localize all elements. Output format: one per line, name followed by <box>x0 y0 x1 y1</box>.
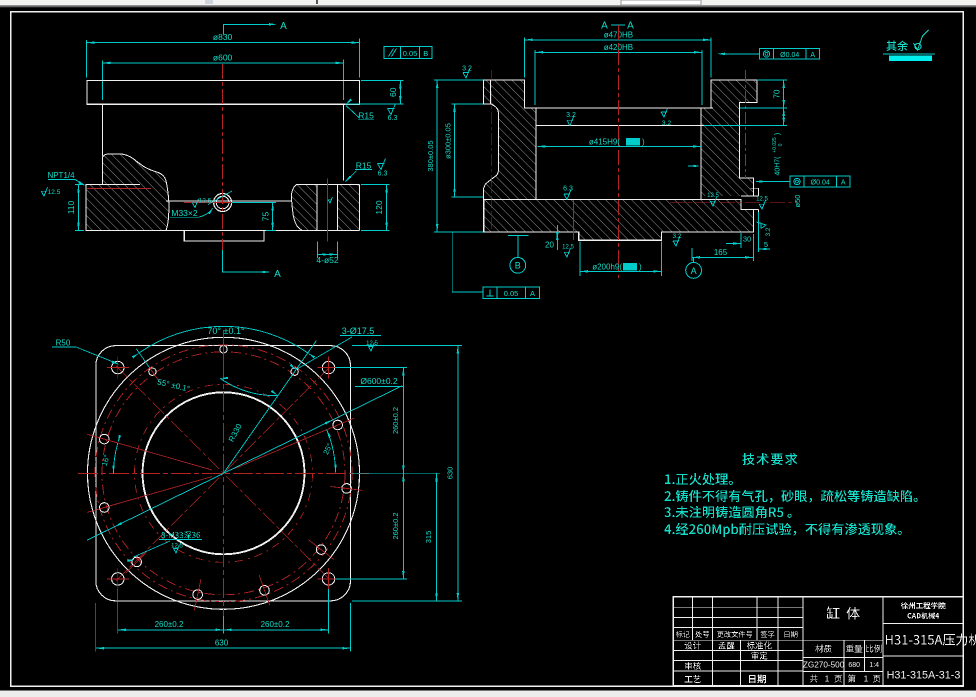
svg-text:12.5: 12.5 <box>756 197 768 203</box>
svg-text:ø50: ø50 <box>793 195 802 208</box>
svg-text:12.5: 12.5 <box>562 245 574 251</box>
svg-text:B: B <box>423 49 428 58</box>
svg-text:Ø0.04: Ø0.04 <box>780 52 799 59</box>
svg-text:1: 1 <box>825 674 830 684</box>
svg-text:M33×2: M33×2 <box>171 208 197 218</box>
svg-text:260±0.2: 260±0.2 <box>155 620 184 629</box>
svg-text:R50: R50 <box>56 339 71 348</box>
svg-text:6.3: 6.3 <box>563 186 573 193</box>
svg-text:70: 70 <box>773 89 782 98</box>
svg-text:B: B <box>515 261 521 271</box>
svg-text:30: 30 <box>743 235 751 244</box>
svg-text:380±0.05: 380±0.05 <box>426 140 435 171</box>
svg-text:0.05: 0.05 <box>504 289 519 298</box>
svg-text:H31-315A-31-3: H31-315A-31-3 <box>887 669 961 681</box>
svg-text:ø415H9(: ø415H9( <box>589 138 620 147</box>
svg-text:630: 630 <box>215 639 229 648</box>
svg-text:60: 60 <box>388 87 398 97</box>
svg-text:A: A <box>810 52 815 59</box>
svg-text:110: 110 <box>66 200 76 214</box>
svg-text:A: A <box>280 21 287 32</box>
svg-text:): ) <box>775 133 782 135</box>
svg-text:R15: R15 <box>358 111 374 121</box>
svg-text:70° ±0.1°: 70° ±0.1° <box>207 326 245 336</box>
svg-text:ø200h9(: ø200h9( <box>592 263 622 272</box>
svg-text:ø600: ø600 <box>213 52 233 62</box>
svg-text:5: 5 <box>764 240 768 249</box>
svg-text:3-Ø17.5: 3-Ø17.5 <box>342 326 375 336</box>
svg-text:120: 120 <box>374 200 384 214</box>
svg-text:630: 630 <box>446 467 455 480</box>
svg-text:12.5: 12.5 <box>366 341 378 347</box>
svg-text:3.2: 3.2 <box>566 112 576 119</box>
svg-text:3.2: 3.2 <box>765 227 772 236</box>
svg-text:ø830: ø830 <box>213 32 233 42</box>
svg-text:6.3: 6.3 <box>378 171 388 178</box>
svg-text:3.2: 3.2 <box>662 120 672 127</box>
svg-text:): ) <box>642 138 645 147</box>
svg-text:Ø600±0.2: Ø600±0.2 <box>360 376 398 386</box>
svg-text:6.3: 6.3 <box>388 115 398 122</box>
svg-text:260±0.2: 260±0.2 <box>391 512 400 539</box>
svg-text:3.2: 3.2 <box>672 233 681 240</box>
svg-text:ZG270-500: ZG270-500 <box>803 660 845 669</box>
svg-text:0.05: 0.05 <box>403 49 418 58</box>
svg-text:R15: R15 <box>356 160 372 170</box>
svg-text:260±0.2: 260±0.2 <box>391 407 400 434</box>
svg-text:40H7(: 40H7( <box>775 156 782 176</box>
svg-text:A: A <box>274 269 281 280</box>
svg-text:A: A <box>530 289 535 298</box>
svg-text:NPT1/4: NPT1/4 <box>47 171 75 180</box>
svg-text:1: 1 <box>864 674 869 684</box>
svg-text:75: 75 <box>260 212 270 222</box>
svg-text:0: 0 <box>778 143 784 146</box>
svg-text:1:4: 1:4 <box>869 662 879 669</box>
svg-text:3.2: 3.2 <box>462 66 472 73</box>
svg-text:12.5: 12.5 <box>171 544 183 550</box>
svg-text:20: 20 <box>545 241 554 250</box>
svg-text:260±0.2: 260±0.2 <box>261 620 290 629</box>
svg-text:ø300±0.05: ø300±0.05 <box>443 123 452 159</box>
svg-text:4-ø52: 4-ø52 <box>316 255 338 265</box>
svg-text:12.5: 12.5 <box>707 193 719 199</box>
svg-text:A: A <box>691 266 697 276</box>
svg-text:): ) <box>639 263 642 272</box>
svg-text:680: 680 <box>848 662 860 669</box>
svg-text:165: 165 <box>714 248 728 257</box>
svg-text:12.5: 12.5 <box>48 189 61 196</box>
svg-text:315: 315 <box>424 531 433 544</box>
svg-text:Ø0.04: Ø0.04 <box>811 179 830 186</box>
svg-text:A: A <box>841 179 846 186</box>
